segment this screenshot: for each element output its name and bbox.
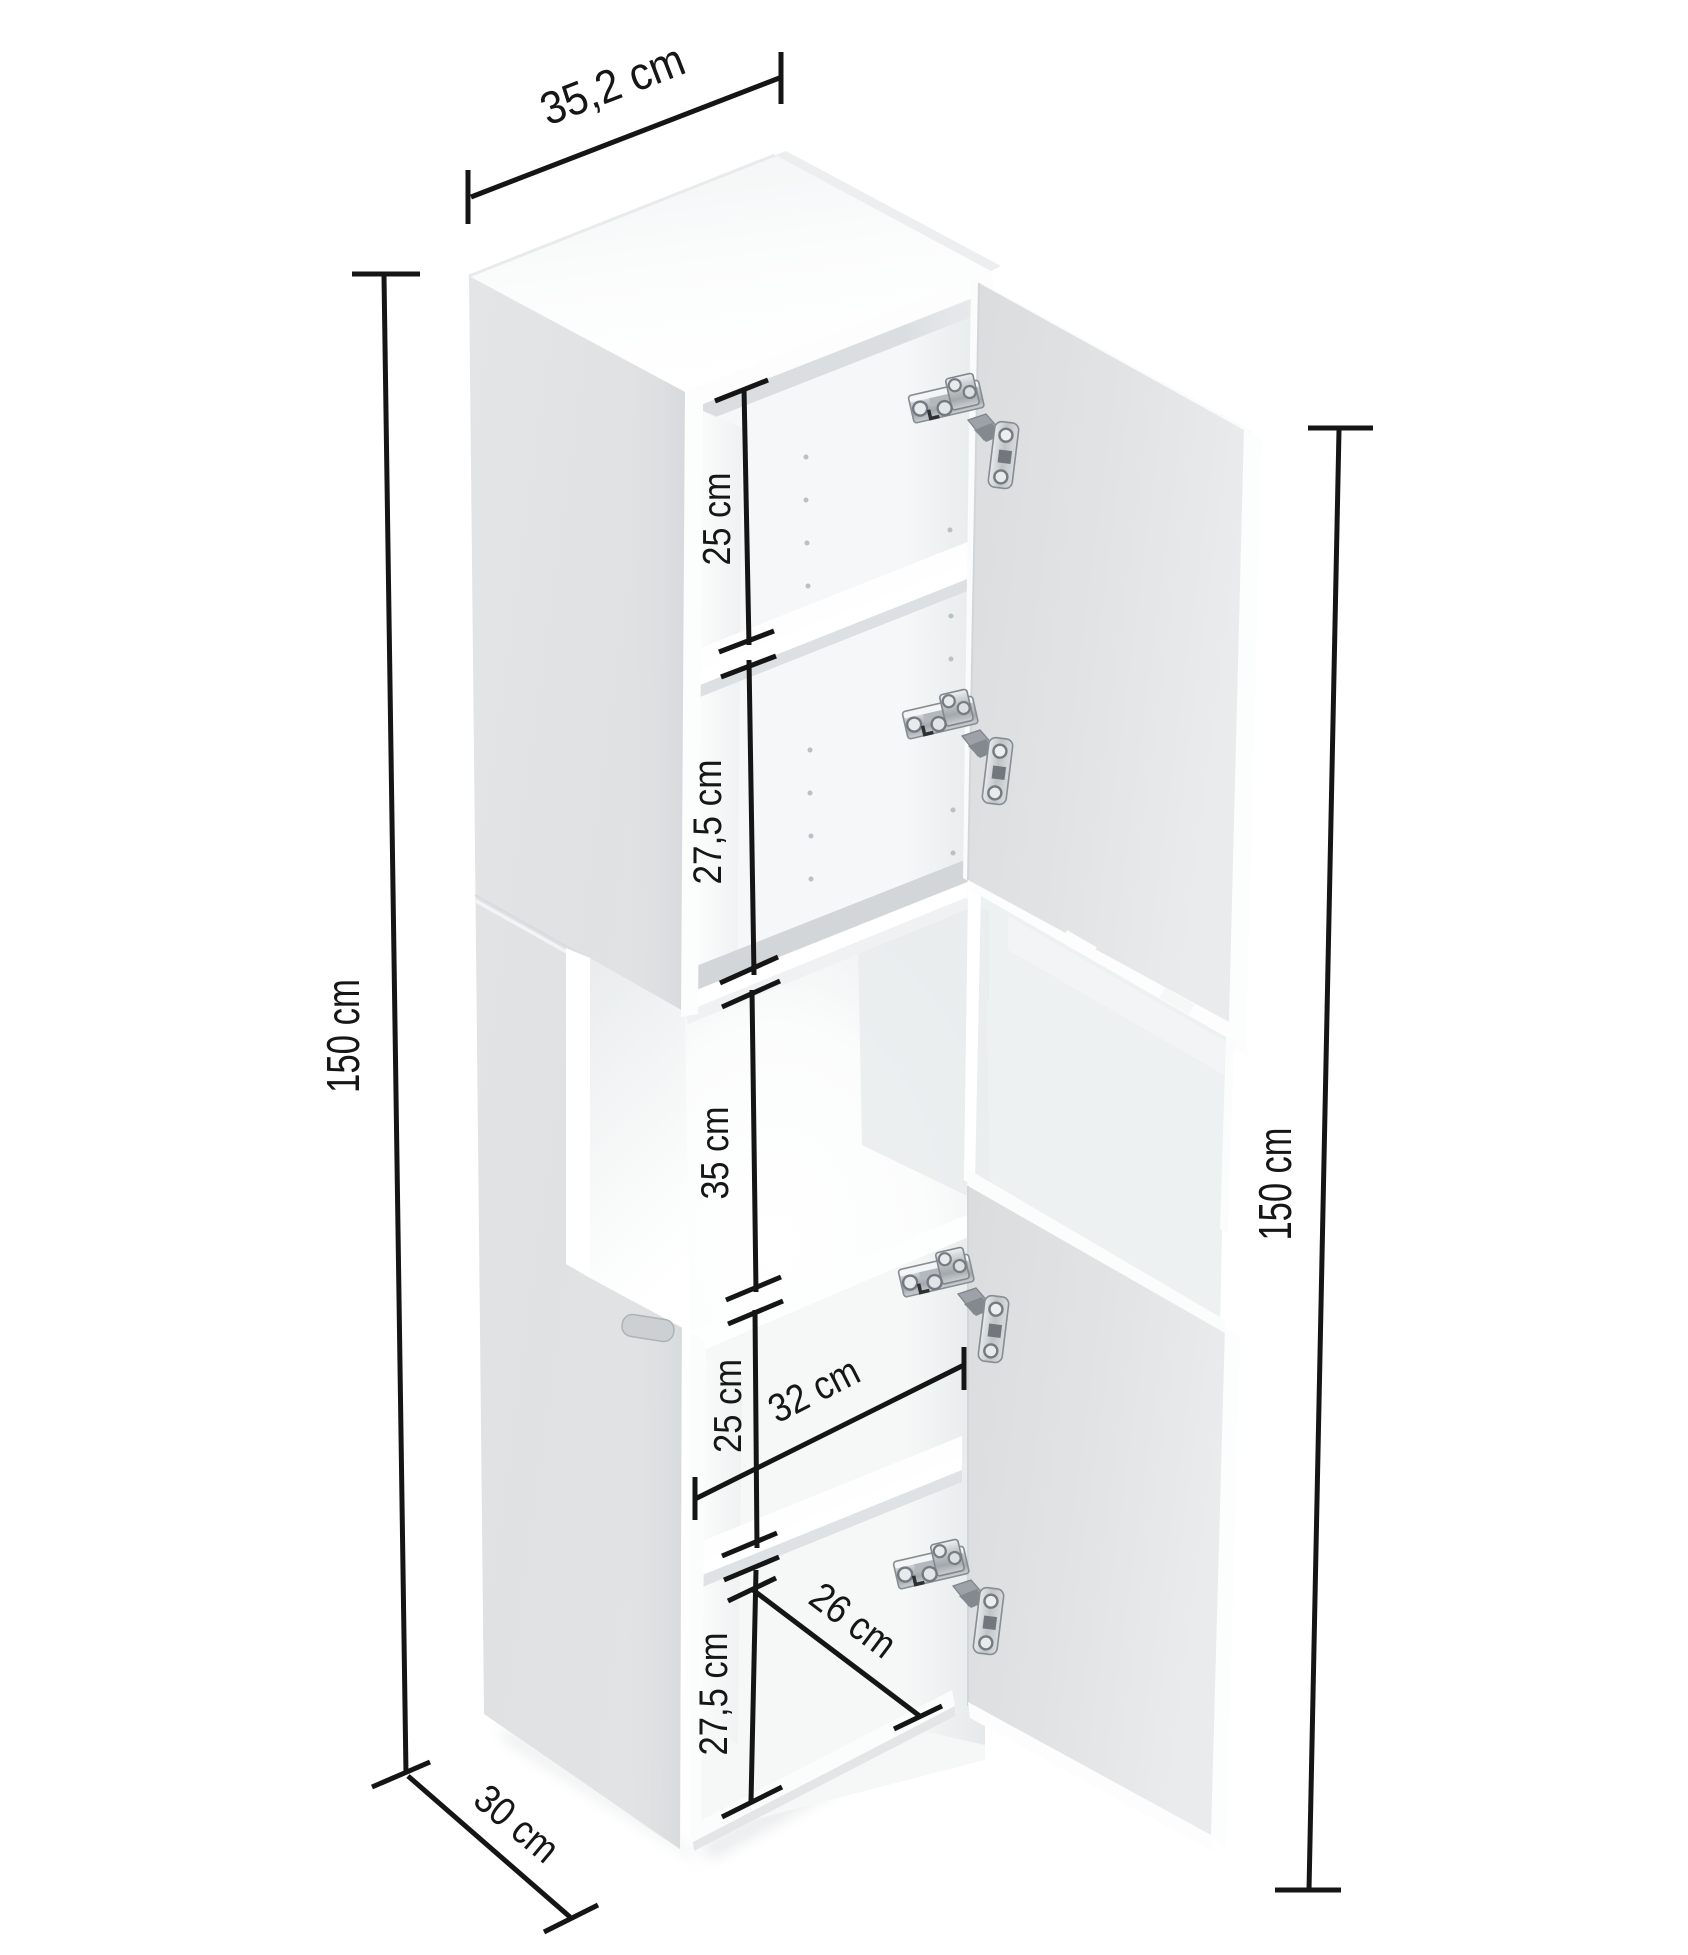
- svg-text:27,5 cm: 27,5 cm: [692, 1633, 736, 1756]
- svg-text:35 cm: 35 cm: [694, 1107, 737, 1200]
- svg-text:27,5 cm: 27,5 cm: [686, 760, 730, 885]
- svg-text:150 cm: 150 cm: [317, 979, 369, 1093]
- svg-text:150 cm: 150 cm: [1249, 1128, 1301, 1241]
- svg-text:25 cm: 25 cm: [696, 473, 739, 566]
- svg-text:25 cm: 25 cm: [707, 1359, 750, 1453]
